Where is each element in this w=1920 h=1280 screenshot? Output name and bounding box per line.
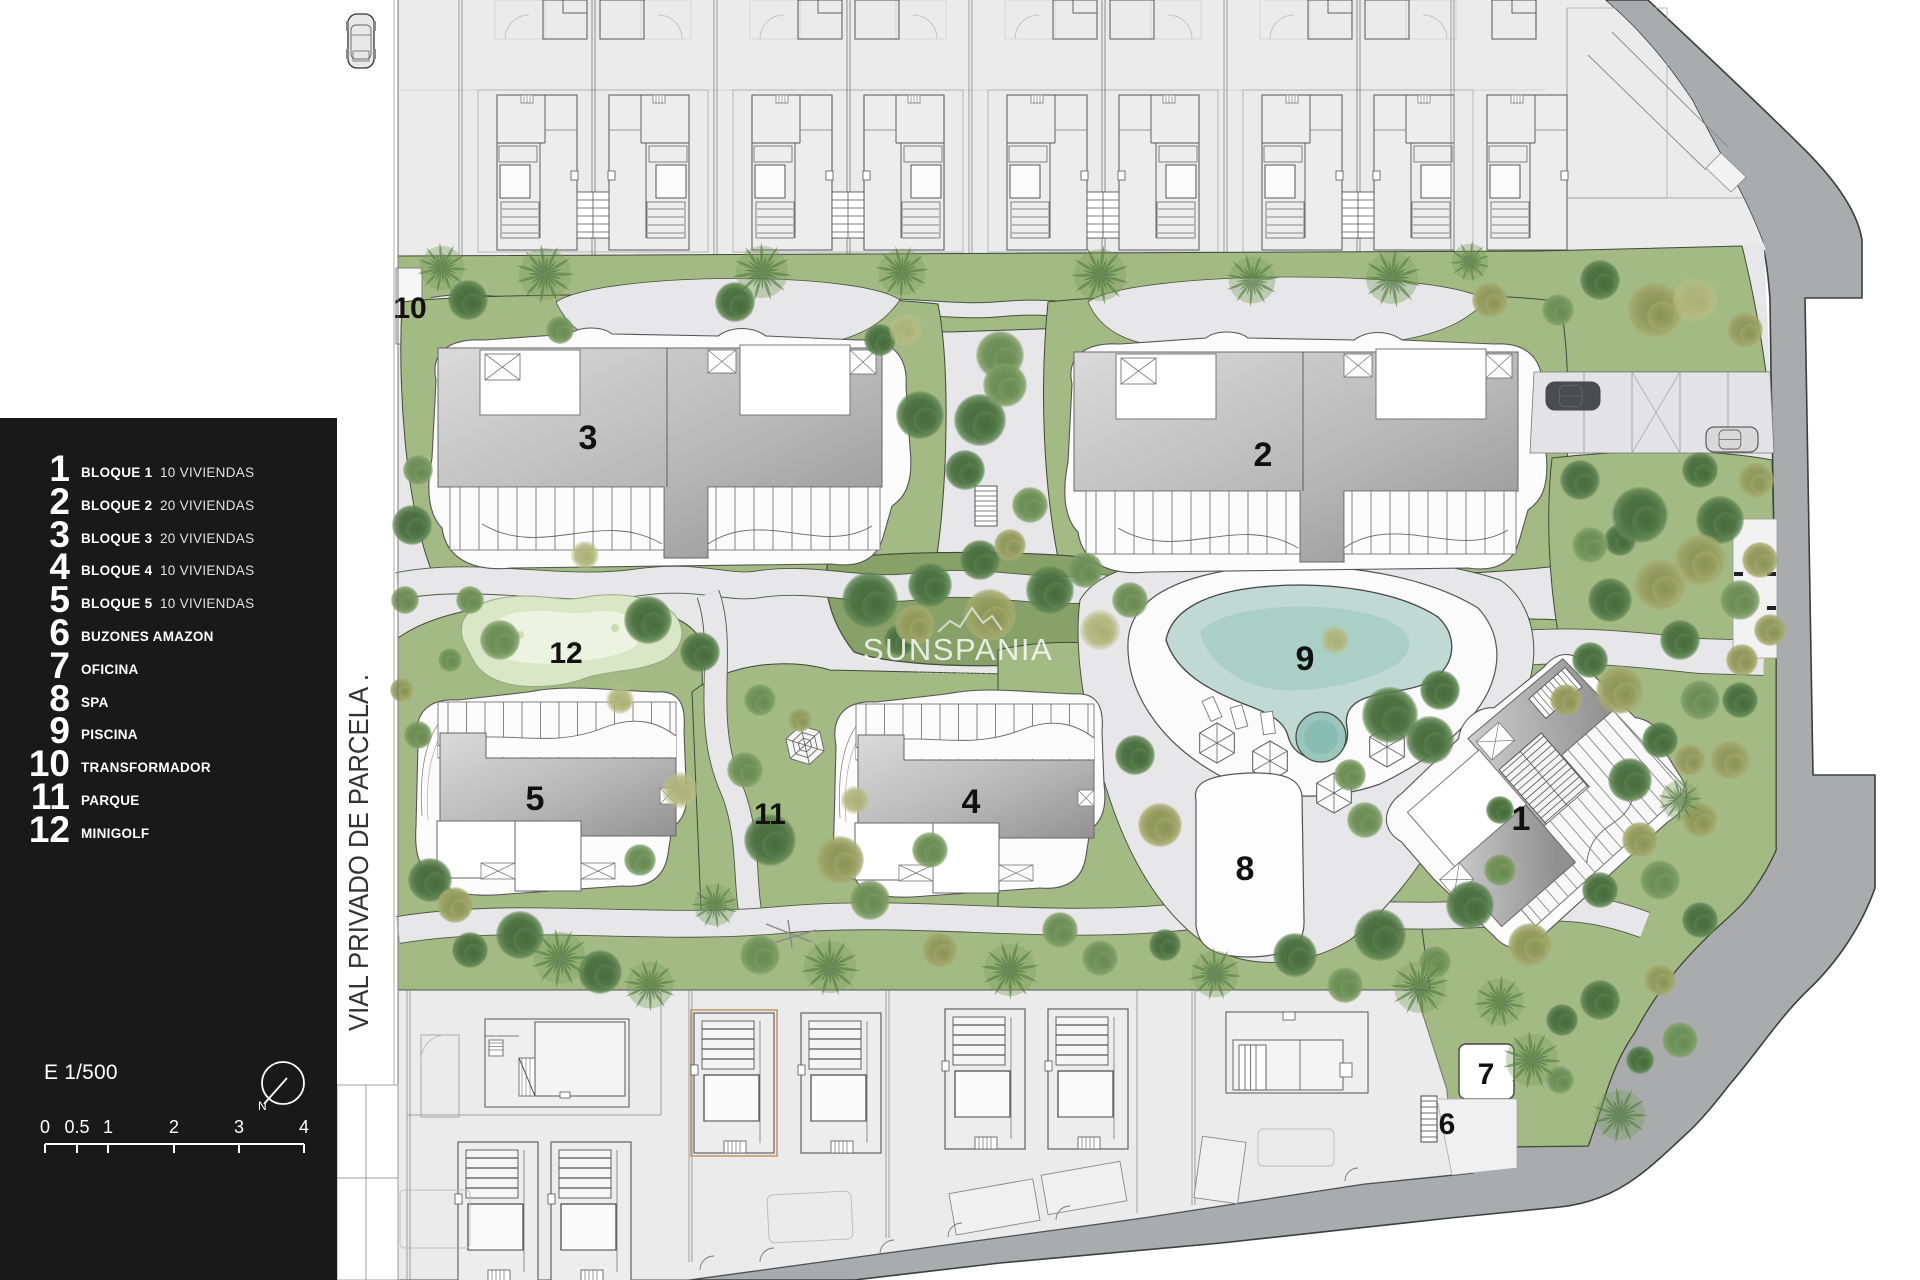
svg-text:PARQUE: PARQUE	[81, 793, 140, 808]
svg-text:0: 0	[40, 1117, 50, 1137]
svg-text:TRANSFORMADOR: TRANSFORMADOR	[81, 760, 211, 775]
svg-text:7: 7	[1478, 1058, 1495, 1091]
svg-text:SUNSPANIA: SUNSPANIA	[863, 632, 1053, 667]
svg-text:20 VIVIENDAS: 20 VIVIENDAS	[160, 531, 254, 546]
svg-text:3: 3	[579, 419, 598, 457]
svg-text:BLOQUE 2: BLOQUE 2	[81, 498, 152, 513]
svg-text:BUZONES AMAZON: BUZONES AMAZON	[81, 629, 214, 644]
svg-text:OFICINA: OFICINA	[81, 662, 139, 677]
svg-text:12: 12	[549, 637, 582, 670]
svg-text:9: 9	[1296, 640, 1315, 678]
svg-text:1: 1	[1512, 800, 1531, 838]
svg-text:BLOQUE 5: BLOQUE 5	[81, 596, 153, 611]
svg-text:4: 4	[299, 1117, 309, 1137]
svg-text:3: 3	[234, 1117, 244, 1137]
svg-text:6: 6	[1439, 1108, 1456, 1141]
svg-text:2: 2	[1254, 436, 1273, 474]
svg-text:12: 12	[29, 809, 70, 850]
svg-text:0.5: 0.5	[64, 1117, 89, 1137]
svg-text:4: 4	[962, 783, 981, 821]
svg-text:11: 11	[754, 798, 786, 831]
svg-text:5: 5	[526, 780, 545, 818]
svg-text:PISCINA: PISCINA	[81, 727, 138, 742]
svg-text:BLOQUE 1: BLOQUE 1	[81, 465, 153, 480]
svg-text:BLOQUE 3: BLOQUE 3	[81, 531, 153, 546]
svg-text:SPA: SPA	[81, 695, 109, 710]
svg-text:8: 8	[1236, 850, 1255, 888]
svg-text:BLOQUE 4: BLOQUE 4	[81, 563, 153, 578]
svg-text:E 1/500: E 1/500	[44, 1061, 118, 1084]
svg-text:1: 1	[103, 1117, 113, 1137]
svg-text:2: 2	[169, 1117, 179, 1137]
svg-text:10 VIVIENDAS: 10 VIVIENDAS	[160, 563, 254, 578]
svg-text:20 VIVIENDAS: 20 VIVIENDAS	[160, 498, 254, 513]
svg-text:COSTA BLANCA: COSTA BLANCA	[919, 667, 998, 676]
svg-text:VIAL PRIVADO DE PARCELA .: VIAL PRIVADO DE PARCELA .	[343, 674, 374, 1031]
svg-text:MINIGOLF: MINIGOLF	[81, 826, 149, 841]
svg-text:10 VIVIENDAS: 10 VIVIENDAS	[160, 465, 254, 480]
svg-text:N: N	[258, 1099, 267, 1113]
svg-text:10 VIVIENDAS: 10 VIVIENDAS	[160, 596, 254, 611]
